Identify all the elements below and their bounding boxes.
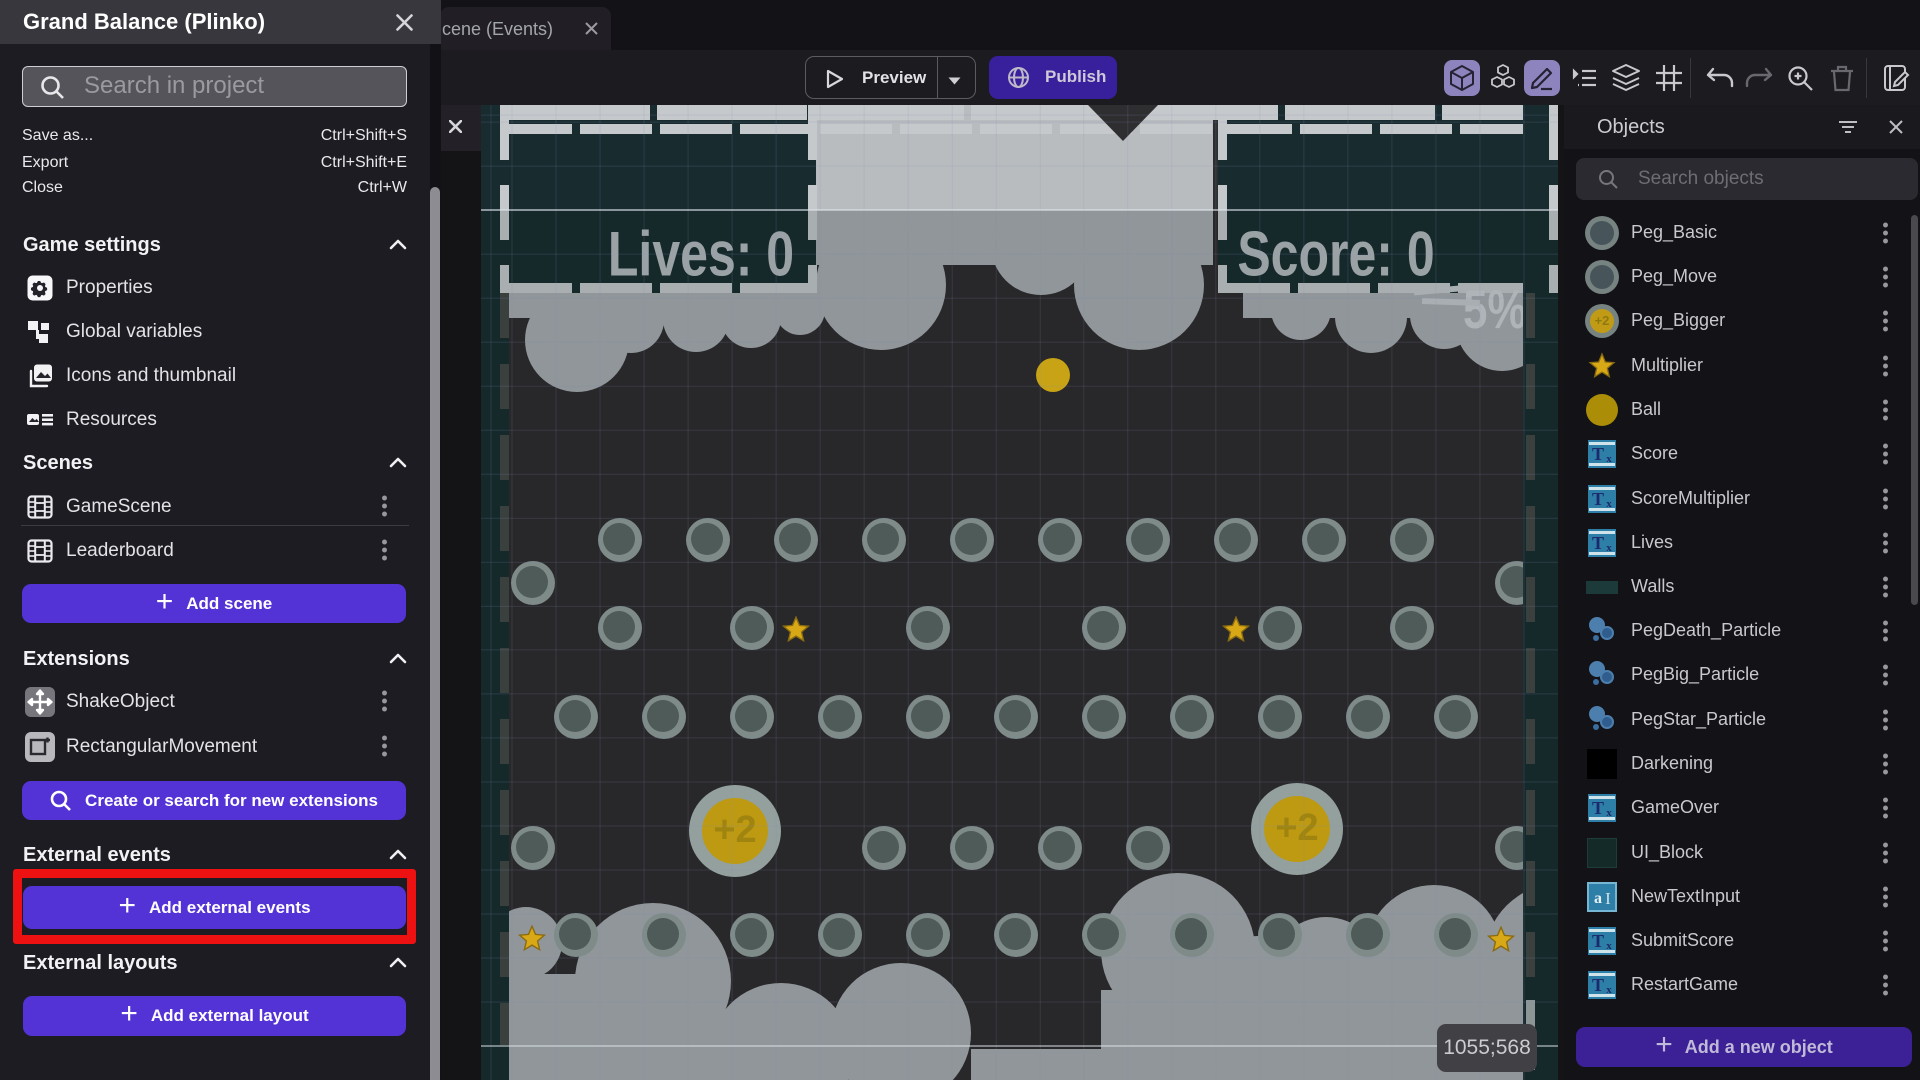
svg-text:T: T bbox=[1592, 444, 1604, 464]
svg-text:T: T bbox=[1592, 798, 1604, 818]
svg-text:x: x bbox=[1606, 498, 1612, 510]
svg-text:x: x bbox=[1606, 984, 1612, 996]
svg-text:T: T bbox=[1592, 931, 1604, 951]
svg-text:T: T bbox=[1592, 489, 1604, 509]
svg-text:x: x bbox=[1606, 940, 1612, 952]
svg-text:x: x bbox=[1606, 453, 1612, 465]
svg-text:T: T bbox=[1592, 975, 1604, 995]
svg-text:T: T bbox=[1592, 533, 1604, 553]
svg-text:I: I bbox=[1605, 889, 1611, 908]
svg-text:a: a bbox=[1594, 890, 1602, 907]
svg-text:x: x bbox=[1606, 807, 1612, 819]
svg-text:x: x bbox=[1606, 542, 1612, 554]
